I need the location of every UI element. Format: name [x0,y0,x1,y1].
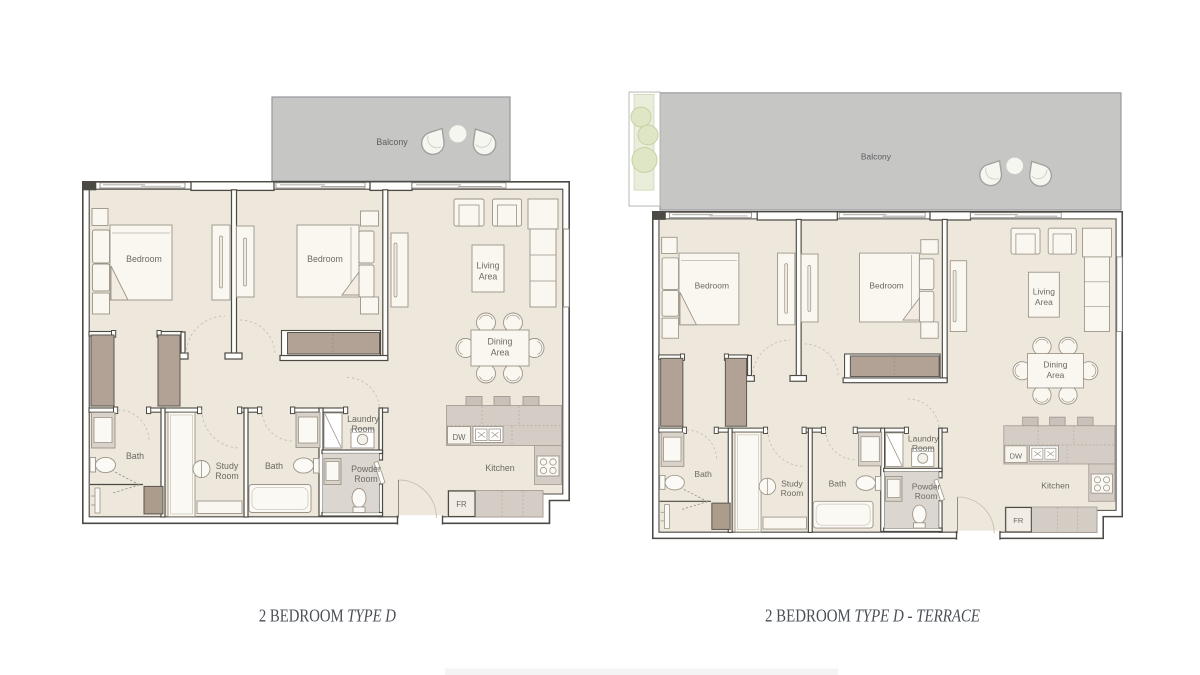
svg-text:Bath: Bath [829,479,847,489]
svg-text:Laundry: Laundry [347,414,379,424]
svg-text:Living: Living [477,261,500,271]
svg-text:Room: Room [915,491,938,501]
svg-text:DW: DW [1010,452,1023,461]
svg-text:2 BEDROOM TYPE D - TERRACE: 2 BEDROOM TYPE D - TERRACE [765,606,980,626]
svg-text:FR: FR [1013,516,1024,525]
svg-text:Room: Room [215,471,238,481]
svg-text:DW: DW [453,433,467,442]
svg-text:Study: Study [781,479,803,489]
svg-text:Room: Room [912,443,935,453]
svg-text:Powder: Powder [351,464,381,474]
svg-text:Powder: Powder [912,481,941,491]
svg-text:Study: Study [216,461,239,471]
svg-text:Bedroom: Bedroom [869,281,903,291]
svg-text:Bedroom: Bedroom [307,254,343,264]
svg-text:2 BEDROOM TYPE D: 2 BEDROOM TYPE D [259,606,396,626]
svg-text:Bedroom: Bedroom [126,254,162,264]
svg-text:Bath: Bath [126,451,144,461]
svg-text:Area: Area [479,272,498,282]
svg-text:Area: Area [1035,297,1053,307]
svg-text:Balcony: Balcony [376,137,408,147]
svg-text:Kitchen: Kitchen [485,463,514,473]
svg-text:Dining: Dining [1043,359,1067,369]
svg-text:Kitchen: Kitchen [1041,480,1070,490]
svg-text:Bedroom: Bedroom [695,281,729,291]
svg-text:Dining: Dining [488,337,513,347]
svg-text:Bath: Bath [694,469,712,479]
svg-text:Area: Area [491,348,510,358]
svg-text:Room: Room [354,474,377,484]
svg-text:Living: Living [1033,287,1055,297]
svg-text:Bath: Bath [265,461,283,471]
svg-text:Balcony: Balcony [861,151,892,161]
svg-text:Room: Room [351,424,374,434]
svg-text:Laundry: Laundry [908,434,939,444]
svg-text:FR: FR [456,500,467,509]
svg-text:Room: Room [781,488,804,498]
svg-text:Area: Area [1046,370,1064,380]
